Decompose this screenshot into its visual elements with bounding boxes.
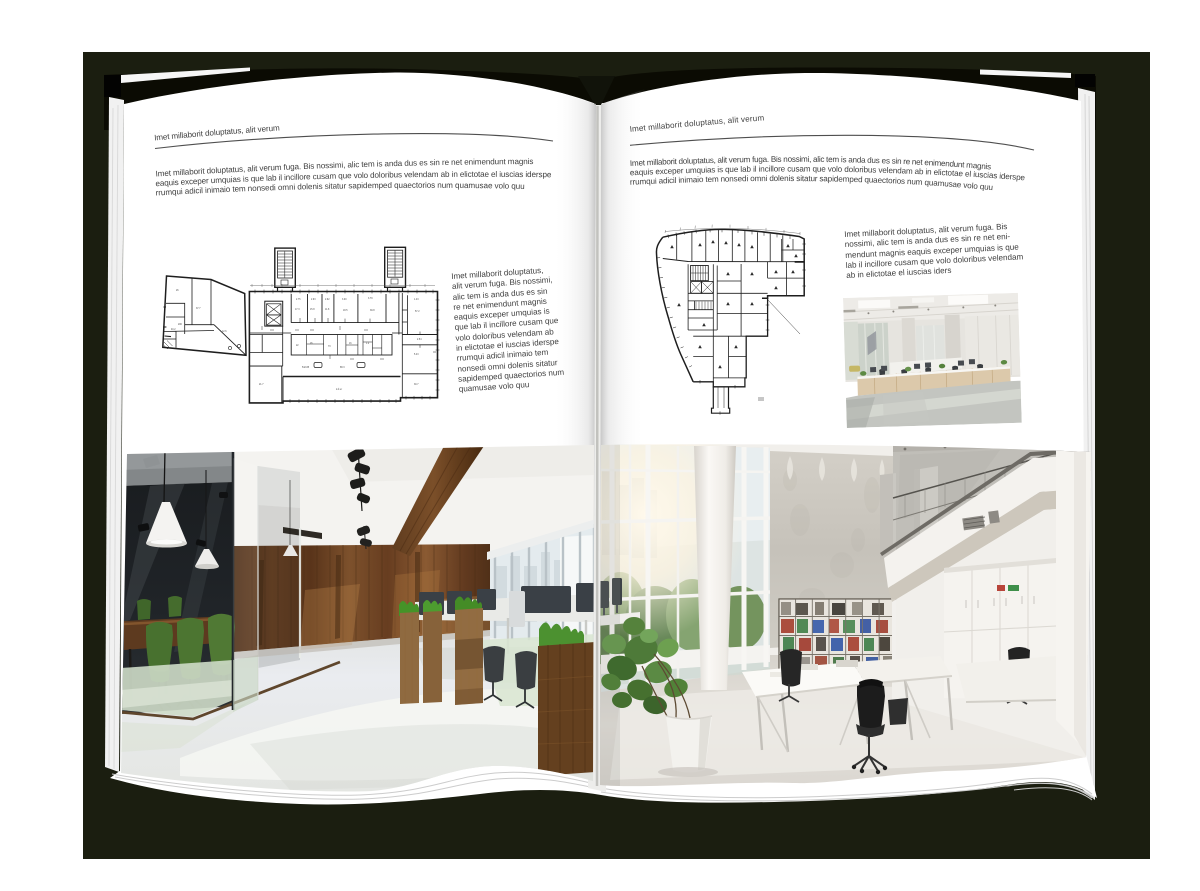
svg-text:18.5: 18.5 xyxy=(343,310,348,312)
svg-text:2.75: 2.75 xyxy=(296,299,301,301)
svg-text:88.3: 88.3 xyxy=(340,367,345,369)
svg-text:3.00: 3.00 xyxy=(342,299,347,301)
svg-text:5.43: 5.43 xyxy=(414,354,419,356)
svg-text:40.2: 40.2 xyxy=(171,329,176,331)
svg-text:37.7: 37.7 xyxy=(196,308,201,310)
svg-text:17.3: 17.3 xyxy=(295,309,300,311)
svg-text:3.79: 3.79 xyxy=(368,298,373,300)
svg-text:2.54: 2.54 xyxy=(417,339,422,341)
svg-text:39.8: 39.8 xyxy=(370,310,375,312)
svg-text:1.43: 1.43 xyxy=(414,299,419,301)
svg-text:30.7: 30.7 xyxy=(414,384,419,386)
svg-text:57.2: 57.2 xyxy=(415,311,420,313)
svg-text:12.6: 12.6 xyxy=(222,331,227,333)
svg-text:2.92: 2.92 xyxy=(325,299,330,301)
svg-text:2.93: 2.93 xyxy=(311,299,316,301)
svg-text:542.88: 542.88 xyxy=(302,367,310,369)
svg-text:11.8: 11.8 xyxy=(325,309,330,311)
svg-text:2-й эт: 2-й эт xyxy=(336,388,343,391)
svg-text:21.7: 21.7 xyxy=(259,384,264,386)
svg-text:15.8: 15.8 xyxy=(310,309,315,311)
